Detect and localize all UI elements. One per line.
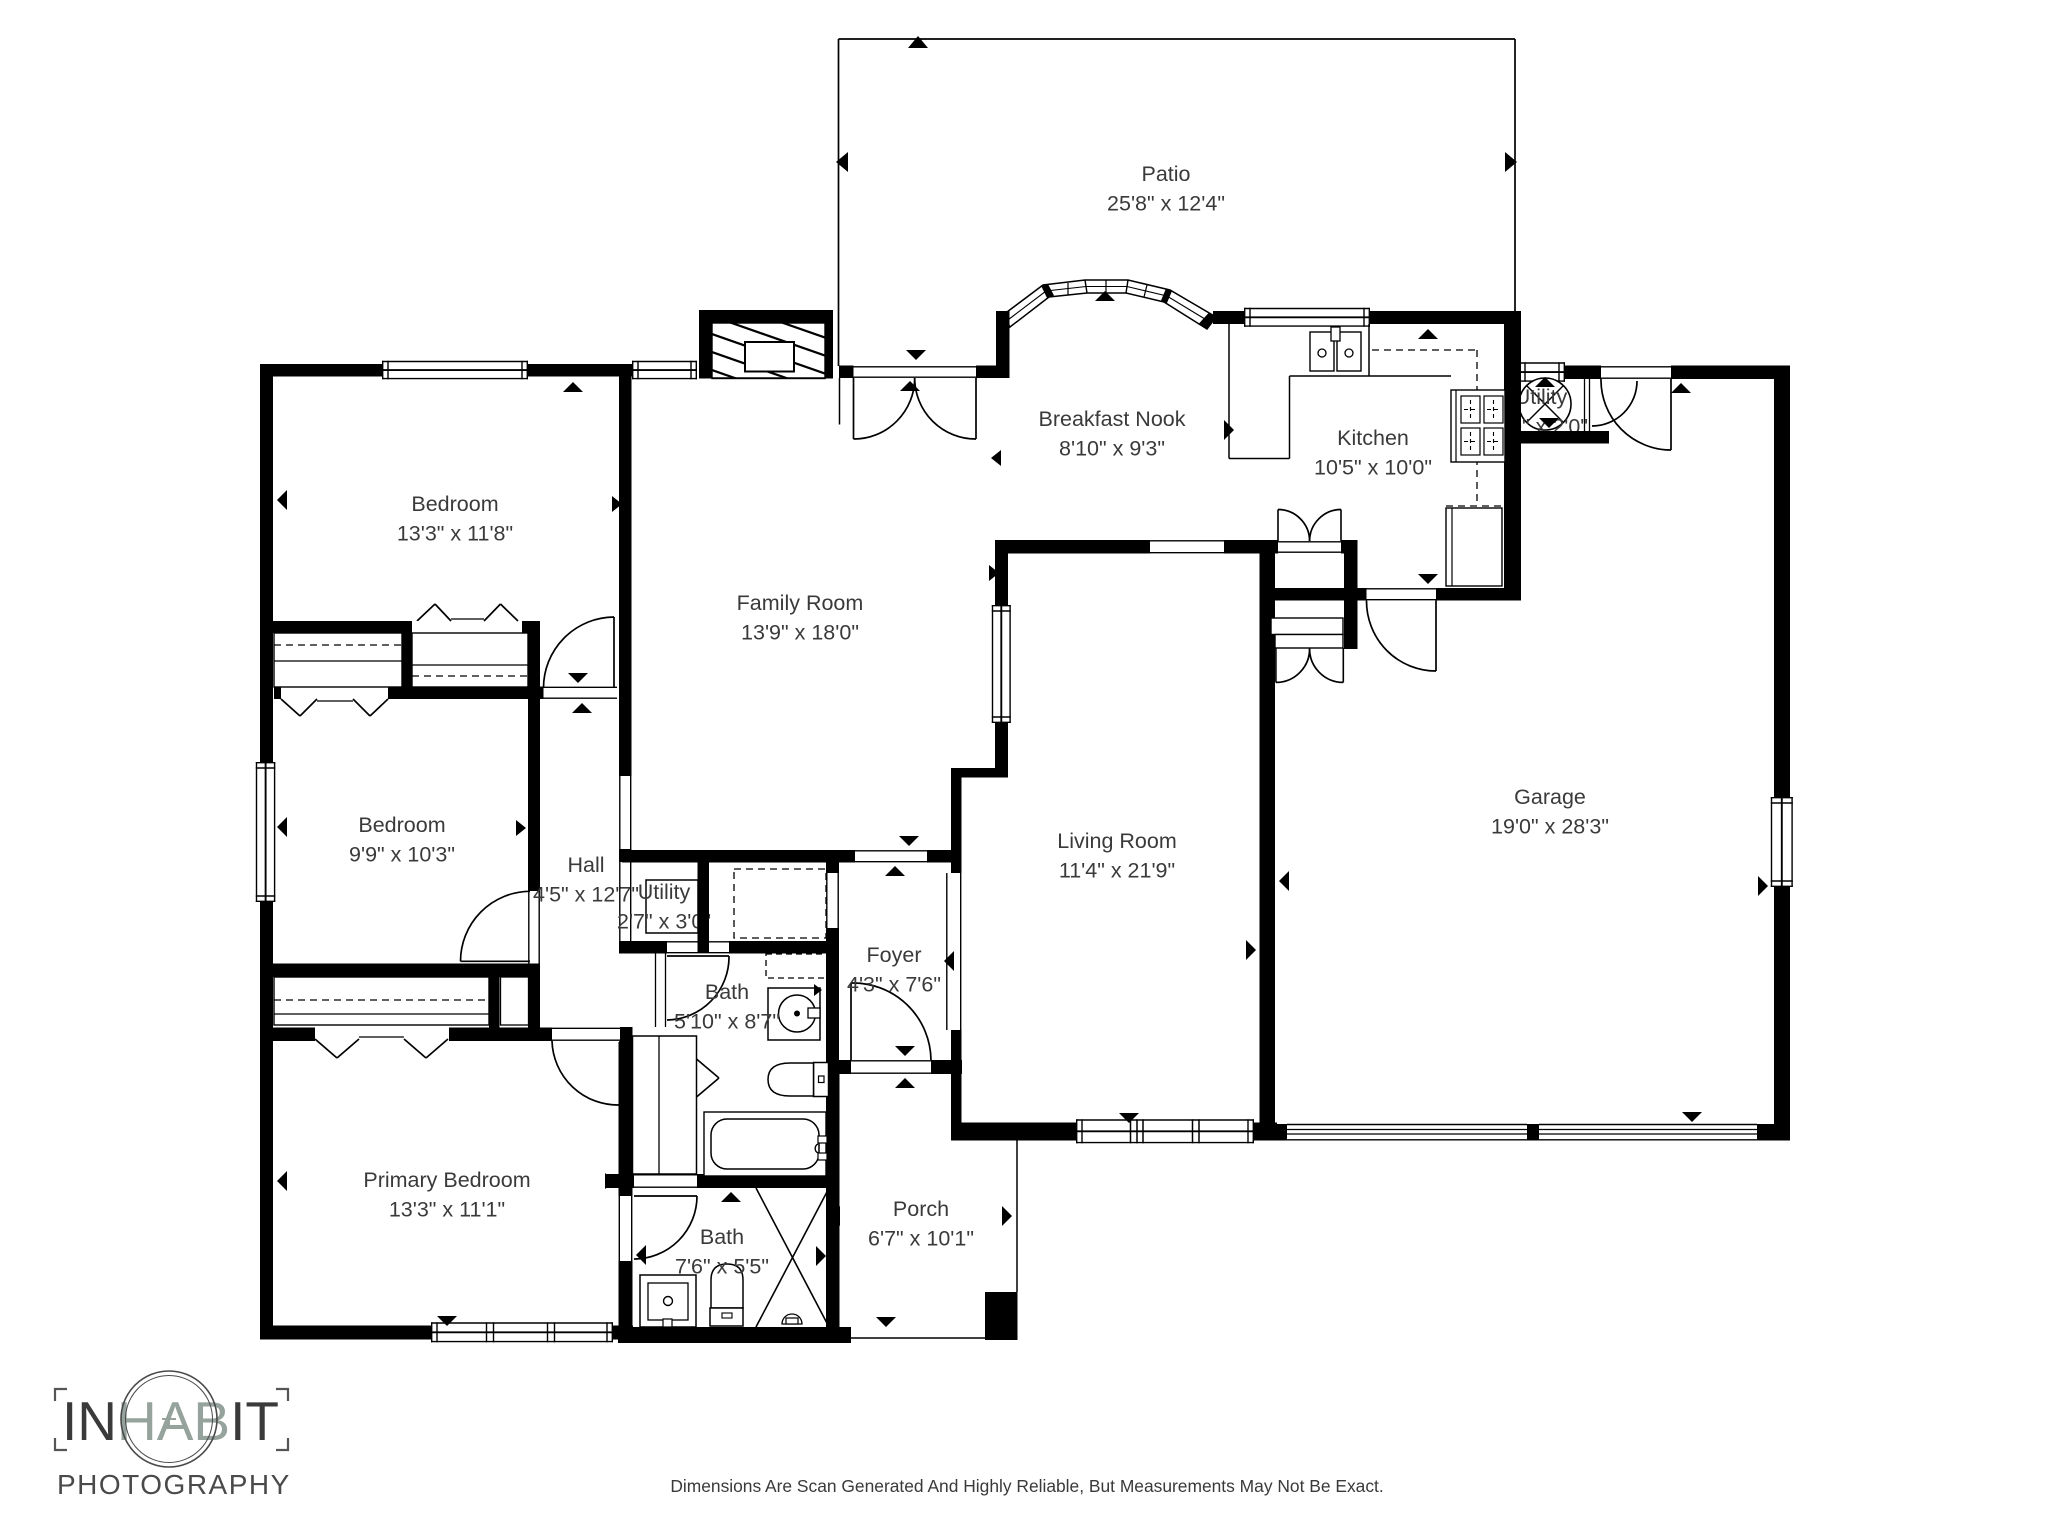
svg-text:13'9" x 18'0": 13'9" x 18'0" — [741, 621, 859, 645]
svg-text:Living Room: Living Room — [1057, 829, 1177, 853]
svg-text:Bath: Bath — [700, 1225, 744, 1249]
svg-text:9'9" x 10'3": 9'9" x 10'3" — [349, 843, 455, 867]
svg-text:INHABIT: INHABIT — [62, 1390, 279, 1452]
svg-text:7'6" x 5'5": 7'6" x 5'5" — [675, 1255, 769, 1279]
svg-text:Primary Bedroom: Primary Bedroom — [363, 1168, 530, 1192]
svg-text:11'4" x 21'9": 11'4" x 21'9" — [1059, 859, 1175, 883]
svg-text:Family Room: Family Room — [737, 591, 864, 615]
svg-text:Bath: Bath — [705, 980, 749, 1004]
svg-text:Hall: Hall — [567, 853, 604, 877]
svg-text:PHOTOGRAPHY: PHOTOGRAPHY — [57, 1469, 291, 1500]
svg-text:13'3" x 11'1": 13'3" x 11'1" — [389, 1198, 505, 1222]
svg-text:6'7" x 10'1": 6'7" x 10'1" — [868, 1227, 974, 1251]
svg-text:Utility: Utility — [638, 880, 691, 904]
svg-text:Bedroom: Bedroom — [411, 492, 498, 516]
svg-text:Patio: Patio — [1141, 162, 1190, 186]
svg-text:Porch: Porch — [893, 1197, 949, 1221]
svg-text:19'0" x 28'3": 19'0" x 28'3" — [1491, 815, 1609, 839]
svg-text:25'8" x 12'4": 25'8" x 12'4" — [1107, 192, 1225, 216]
svg-text:8'10" x 9'3": 8'10" x 9'3" — [1059, 437, 1165, 461]
svg-text:2'7" x 3'0": 2'7" x 3'0" — [617, 910, 711, 934]
svg-text:5'10" x 8'7": 5'10" x 8'7" — [674, 1010, 780, 1034]
svg-text:Foyer: Foyer — [867, 943, 922, 967]
svg-text:Garage: Garage — [1514, 785, 1586, 809]
svg-text:Dimensions Are Scan Generated: Dimensions Are Scan Generated And Highly… — [670, 1476, 1383, 1496]
svg-text:Bedroom: Bedroom — [358, 813, 445, 837]
svg-text:4'3" x 7'6": 4'3" x 7'6" — [847, 973, 941, 997]
svg-text:Utility: Utility — [1515, 385, 1568, 409]
svg-text:Kitchen: Kitchen — [1337, 426, 1409, 450]
svg-text:4'5" x 12'7": 4'5" x 12'7" — [533, 883, 639, 907]
svg-text:Breakfast Nook: Breakfast Nook — [1039, 407, 1186, 431]
svg-text:13'3" x 11'8": 13'3" x 11'8" — [397, 522, 513, 546]
svg-text:10'5" x 10'0": 10'5" x 10'0" — [1314, 456, 1432, 480]
